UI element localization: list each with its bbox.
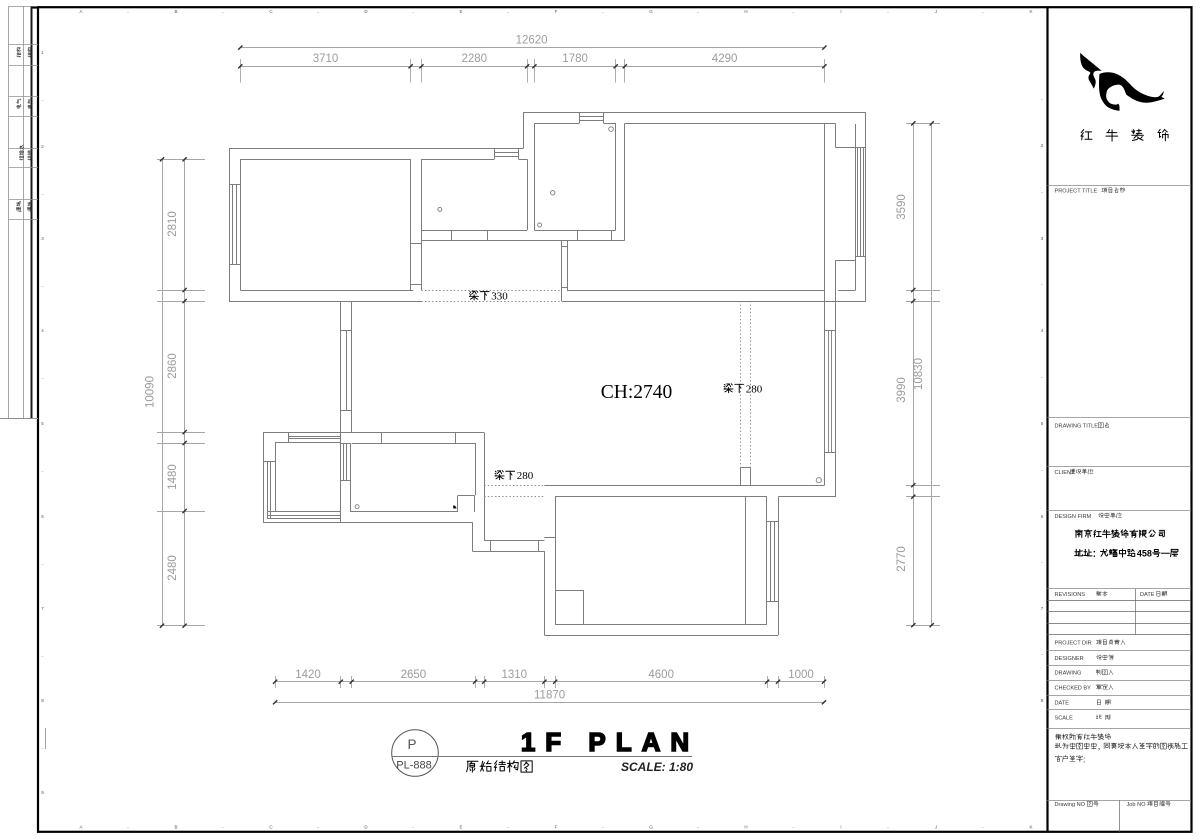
svg-text:K: K <box>1029 825 1032 830</box>
svg-text:H: H <box>744 825 747 830</box>
svg-text:E: E <box>459 9 462 14</box>
svg-text:280: 280 <box>746 383 763 395</box>
svg-text:，: ， <box>1097 744 1104 751</box>
svg-text:4290: 4290 <box>712 53 738 65</box>
svg-text:G: G <box>649 825 653 830</box>
svg-text:J: J <box>935 825 937 830</box>
svg-text:K: K <box>1029 9 1032 14</box>
svg-text:DESIGN FIRM: DESIGN FIRM <box>1055 514 1092 520</box>
svg-text:F: F <box>555 825 558 830</box>
svg-text:4600: 4600 <box>648 669 674 681</box>
svg-text:Job NO: Job NO <box>1127 802 1147 808</box>
svg-text:2650: 2650 <box>401 669 427 681</box>
svg-text:PROJECT TITLE: PROJECT TITLE <box>1055 189 1098 195</box>
svg-text:10830: 10830 <box>913 358 925 390</box>
svg-text:A: A <box>79 9 82 14</box>
svg-text:2860: 2860 <box>167 353 179 379</box>
svg-text:2810: 2810 <box>167 211 179 237</box>
svg-text:458: 458 <box>1137 549 1152 559</box>
svg-text:DRAWING: DRAWING <box>1055 671 1082 677</box>
svg-text:PROJECT DIR: PROJECT DIR <box>1055 641 1092 647</box>
svg-text:10090: 10090 <box>145 376 157 408</box>
svg-text:E: E <box>459 825 462 830</box>
svg-text:3990: 3990 <box>896 377 908 403</box>
svg-text:3710: 3710 <box>313 53 339 65</box>
svg-text:G: G <box>649 9 653 14</box>
svg-text:2480: 2480 <box>167 555 179 581</box>
svg-text:DATE: DATE <box>1055 701 1070 707</box>
svg-text:I: I <box>840 825 841 830</box>
svg-text:CHECKED BY: CHECKED BY <box>1055 686 1092 692</box>
svg-text:12620: 12620 <box>516 35 548 47</box>
svg-text:I: I <box>840 9 841 14</box>
svg-text:1310: 1310 <box>502 669 528 681</box>
svg-text:：: ： <box>1168 744 1175 751</box>
svg-text:DRAWING TITLE: DRAWING TITLE <box>1055 424 1099 430</box>
svg-text:SCALE: SCALE <box>1055 716 1074 722</box>
svg-text:1420: 1420 <box>295 669 321 681</box>
svg-text:280: 280 <box>517 470 534 482</box>
svg-text:3590: 3590 <box>896 194 908 220</box>
svg-text:H: H <box>744 9 747 14</box>
svg-text:B: B <box>174 9 177 14</box>
svg-text:：: ： <box>1083 757 1090 764</box>
svg-text:330: 330 <box>491 291 508 303</box>
svg-text:REVISIONS: REVISIONS <box>1055 592 1086 598</box>
svg-text:1780: 1780 <box>562 53 588 65</box>
svg-text:2770: 2770 <box>896 546 908 572</box>
svg-text:J: J <box>935 9 937 14</box>
svg-text:F: F <box>555 9 558 14</box>
svg-text:CH:2740: CH:2740 <box>601 382 673 403</box>
svg-text:P: P <box>407 737 416 752</box>
svg-text:1F PLAN: 1F PLAN <box>521 727 699 757</box>
svg-text:A: A <box>79 825 82 830</box>
svg-text:DATE: DATE <box>1140 592 1155 598</box>
svg-text:2280: 2280 <box>462 53 488 65</box>
svg-text:SCALE: 1:80: SCALE: 1:80 <box>621 760 693 774</box>
svg-text:1480: 1480 <box>167 464 179 490</box>
svg-text:Drawing NO: Drawing NO <box>1055 802 1086 808</box>
svg-text:PL-888: PL-888 <box>396 760 431 772</box>
svg-text:DESIGNER: DESIGNER <box>1055 656 1084 662</box>
svg-text:：: ： <box>1092 548 1101 558</box>
svg-text:11870: 11870 <box>534 690 565 702</box>
svg-text:B: B <box>174 825 177 830</box>
svg-text:1000: 1000 <box>788 669 814 681</box>
